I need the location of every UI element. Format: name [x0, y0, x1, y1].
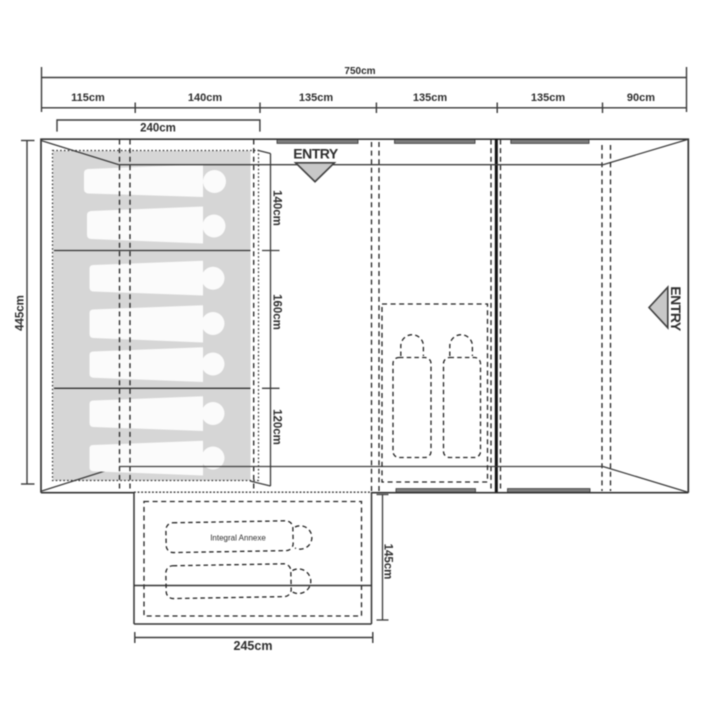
svg-text:145cm: 145cm — [382, 544, 394, 580]
svg-text:ENTRY: ENTRY — [668, 286, 684, 332]
svg-text:140cm: 140cm — [188, 92, 222, 104]
svg-text:135cm: 135cm — [299, 92, 333, 104]
svg-text:90cm: 90cm — [627, 92, 655, 104]
svg-text:135cm: 135cm — [413, 92, 447, 104]
svg-text:135cm: 135cm — [531, 92, 565, 104]
svg-text:140cm: 140cm — [271, 190, 283, 226]
svg-text:445cm: 445cm — [15, 295, 27, 331]
svg-text:750cm: 750cm — [344, 66, 375, 77]
svg-text:160cm: 160cm — [271, 294, 283, 330]
svg-text:240cm: 240cm — [140, 123, 176, 135]
svg-text:115cm: 115cm — [71, 92, 105, 104]
svg-text:245cm: 245cm — [234, 639, 273, 653]
svg-text:120cm: 120cm — [271, 409, 283, 445]
svg-text:Integral Annexe: Integral Annexe — [210, 534, 266, 543]
svg-text:ENTRY: ENTRY — [293, 146, 339, 162]
